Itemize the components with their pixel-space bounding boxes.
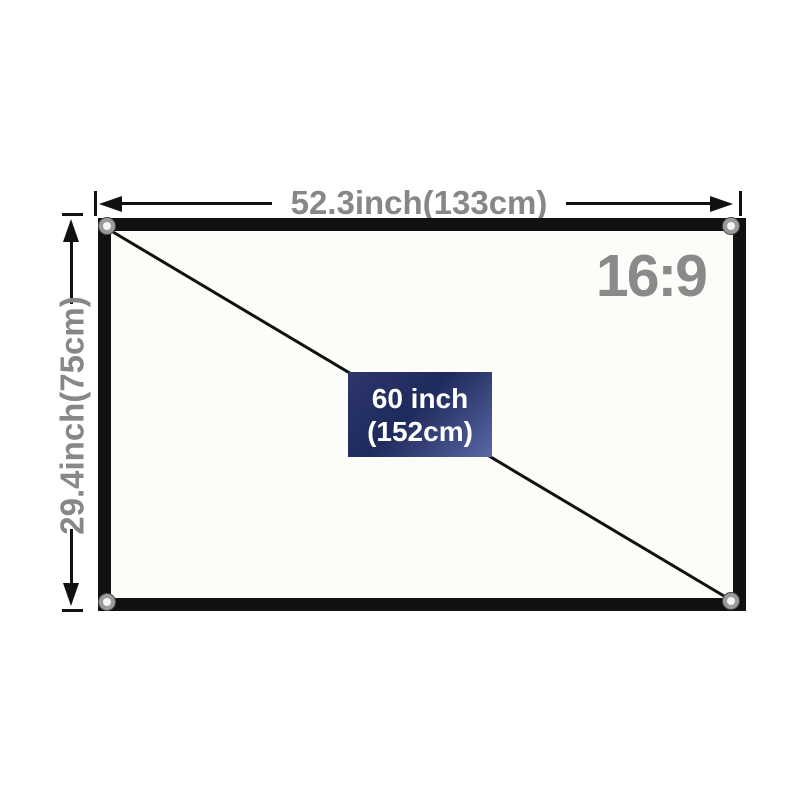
grommet-bottom-left (99, 594, 115, 610)
aspect-ratio-label: 16:9 (592, 247, 706, 306)
diagonal-size-cm: (152cm) (367, 415, 473, 448)
projector-screen-diagram: 52.3inch(133cm) 29.4inch(75cm) 16:9 60 i… (0, 0, 800, 800)
diagonal-size-badge: 60 inch (152cm) (348, 372, 492, 457)
grommet-bottom-right (723, 593, 739, 609)
grommet-top-left (99, 218, 115, 234)
grommet-top-right (723, 218, 739, 234)
diagonal-size-inches: 60 inch (372, 382, 468, 415)
